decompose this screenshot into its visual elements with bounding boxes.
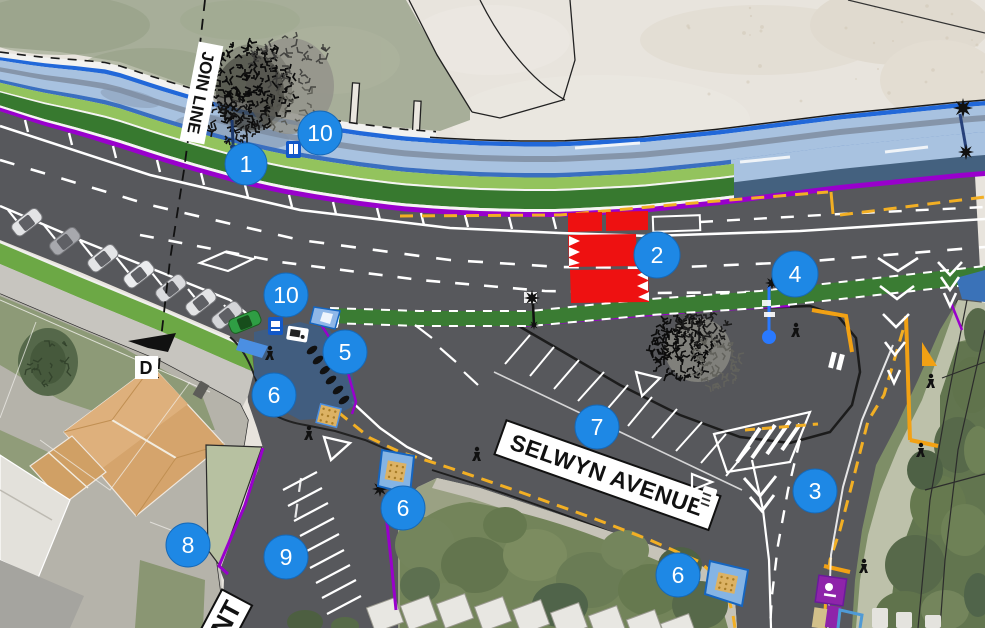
svg-text:6: 6	[268, 382, 281, 408]
svg-text:1: 1	[240, 151, 253, 177]
svg-text:6: 6	[397, 495, 410, 521]
svg-text:3: 3	[809, 478, 822, 504]
svg-text:4: 4	[789, 261, 802, 287]
svg-text:10: 10	[307, 120, 333, 146]
svg-text:7: 7	[591, 414, 604, 440]
svg-text:9: 9	[280, 544, 293, 570]
svg-text:8: 8	[182, 532, 195, 558]
svg-text:6: 6	[672, 562, 685, 588]
svg-text:2: 2	[651, 242, 664, 268]
svg-text:5: 5	[339, 339, 352, 365]
svg-text:D: D	[140, 358, 153, 378]
svg-text:10: 10	[273, 282, 299, 308]
